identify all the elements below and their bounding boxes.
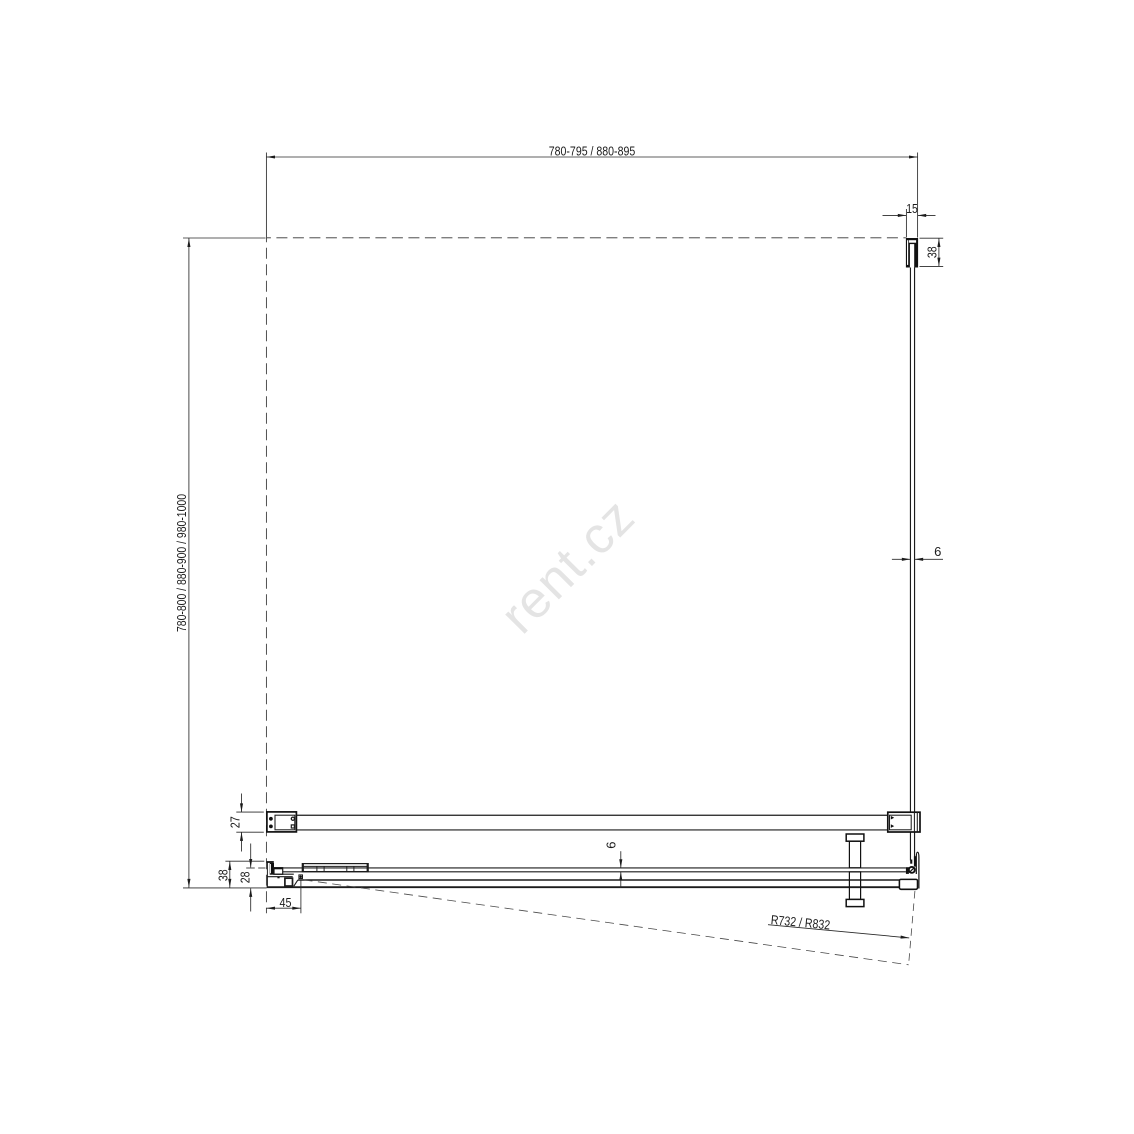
svg-text:15: 15 <box>906 201 918 216</box>
svg-text:45: 45 <box>280 895 292 910</box>
svg-text:28: 28 <box>237 872 252 884</box>
svg-text:27: 27 <box>227 816 242 828</box>
svg-text:38: 38 <box>215 869 230 881</box>
svg-text:38: 38 <box>924 246 939 258</box>
svg-text:6: 6 <box>934 544 941 559</box>
svg-text:780-800 / 880-900 / 980-1000: 780-800 / 880-900 / 980-1000 <box>174 494 189 632</box>
svg-text:780-795 / 880-895: 780-795 / 880-895 <box>549 143 636 158</box>
svg-text:6: 6 <box>604 842 619 849</box>
